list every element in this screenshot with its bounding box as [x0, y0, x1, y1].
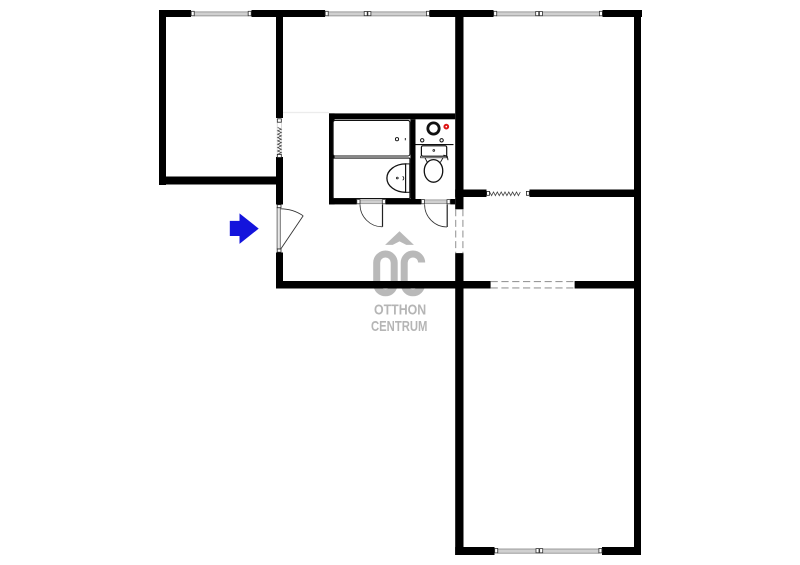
svg-text:CENTRUM: CENTRUM [371, 319, 427, 335]
svg-text:OTTHON: OTTHON [374, 303, 426, 319]
